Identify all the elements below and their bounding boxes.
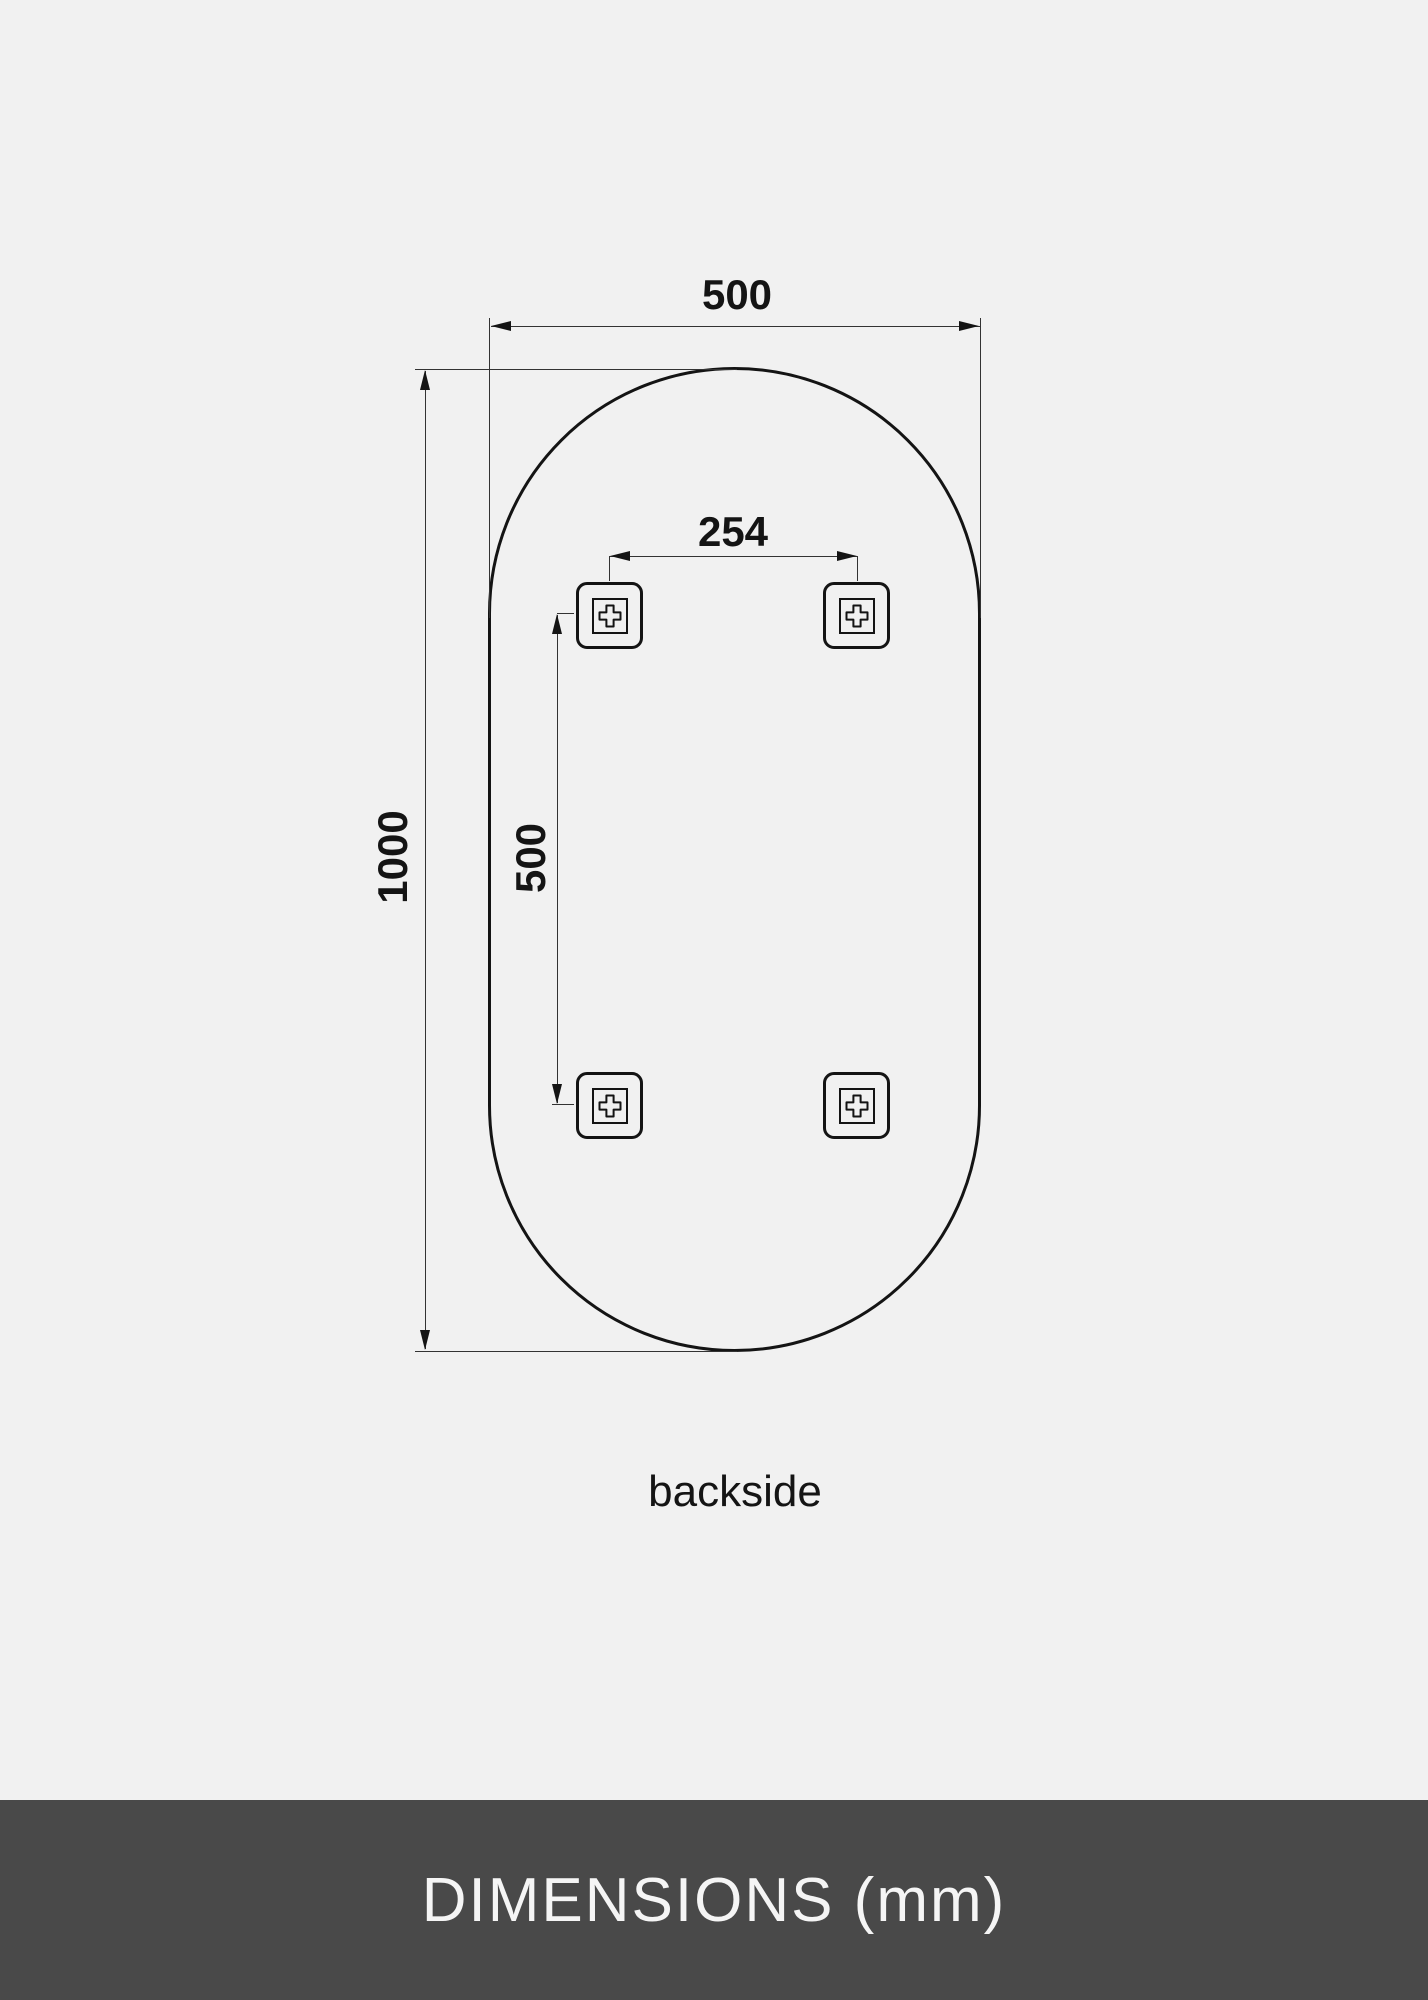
extension-stub-bottom (552, 1104, 574, 1105)
mounting-bracket-bottom-left (576, 1072, 643, 1139)
bracket-plate (592, 1088, 628, 1124)
view-label: backside (648, 1470, 822, 1514)
footer-banner: DIMENSIONS (mm) (0, 1800, 1428, 2000)
dimension-line (491, 326, 980, 327)
hole-spacing-horizontal-label: 254 (698, 511, 768, 553)
screw-hole-icon (845, 1094, 869, 1118)
arrow-down-icon (420, 1330, 430, 1350)
hole-spacing-vertical-label: 500 (510, 823, 552, 893)
extension-line-top (415, 369, 737, 370)
mounting-bracket-top-right (823, 582, 890, 649)
screw-hole-icon (598, 1094, 622, 1118)
extension-stub-right (857, 556, 858, 581)
mounting-bracket-bottom-right (823, 1072, 890, 1139)
dimension-line (425, 371, 426, 1349)
width-dimension-label: 500 (702, 274, 772, 316)
arrow-down-icon (552, 1084, 562, 1104)
extension-line-bottom (415, 1351, 737, 1352)
height-dimension-label: 1000 (372, 810, 414, 903)
arrow-up-icon (420, 370, 430, 390)
screw-hole-icon (845, 604, 869, 628)
dimension-line (610, 556, 857, 557)
footer-title: DIMENSIONS (mm) (422, 1865, 1007, 1936)
extension-line-left (489, 318, 490, 618)
arrow-right-icon (837, 551, 857, 561)
bracket-plate (839, 1088, 875, 1124)
screw-hole-icon (598, 604, 622, 628)
dimension-diagram: 500 1000 254 500 (0, 0, 1428, 2000)
arrow-right-icon (959, 321, 979, 331)
arrow-left-icon (610, 551, 630, 561)
extension-line-right (980, 318, 981, 618)
dimension-line (557, 615, 558, 1103)
arrow-left-icon (491, 321, 511, 331)
arrow-up-icon (552, 614, 562, 634)
bracket-plate (592, 598, 628, 634)
bracket-plate (839, 598, 875, 634)
mounting-bracket-top-left (576, 582, 643, 649)
